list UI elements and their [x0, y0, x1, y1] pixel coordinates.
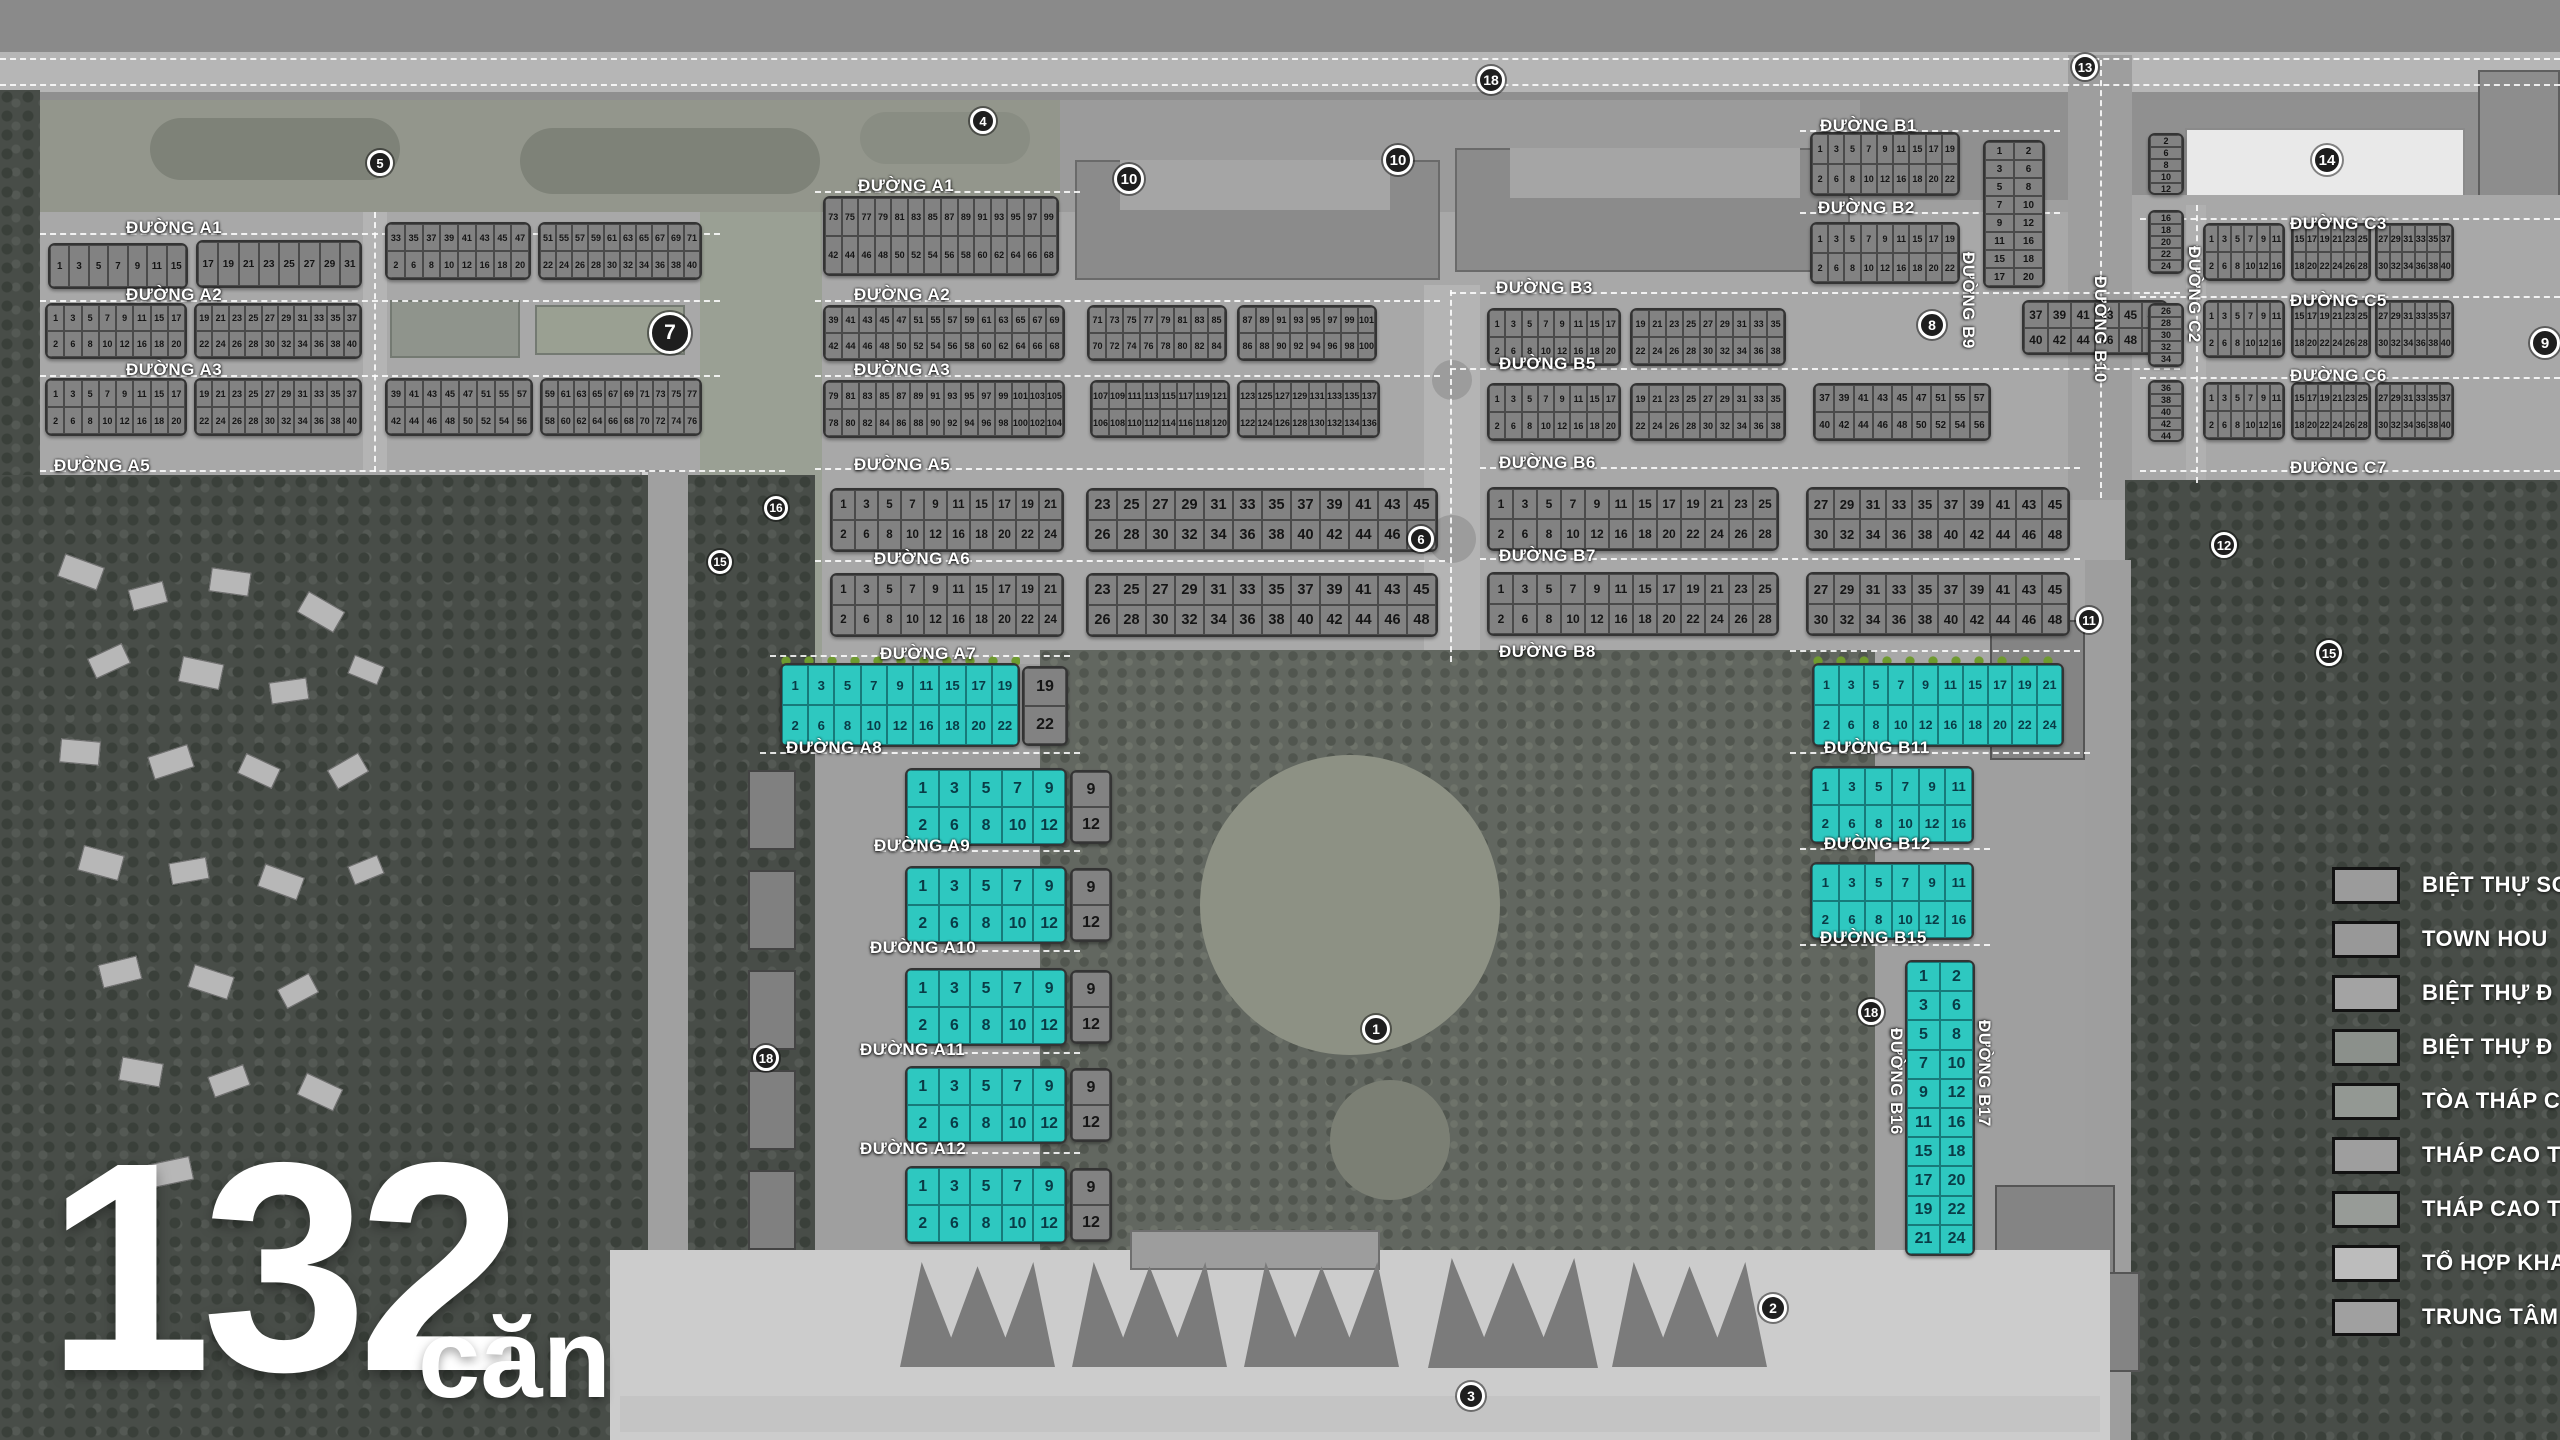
lot-number: 22 — [196, 407, 212, 434]
lot-number: 32 — [2390, 411, 2403, 438]
lot-number: 15 — [1633, 489, 1657, 519]
lot-number: 103 — [1029, 382, 1046, 409]
lot-number: 61 — [558, 380, 574, 407]
lot-number: 17 — [198, 242, 218, 286]
lot-number: 36 — [2415, 252, 2428, 279]
lot-number: 9 — [1033, 1068, 1065, 1105]
lot-number: 38 — [2150, 394, 2182, 406]
lot-number: 66 — [1029, 333, 1046, 359]
legend-swatch — [2332, 1083, 2400, 1120]
lot-number: 44 — [1349, 605, 1378, 635]
lot-number: 60 — [974, 236, 991, 274]
lot-number: 2 — [2014, 142, 2043, 160]
lot-number: 17 — [966, 665, 992, 705]
lot-number: 28 — [1753, 519, 1777, 549]
lot-number: 45 — [1892, 385, 1911, 412]
lot-number: 10 — [2244, 252, 2257, 279]
lot-number: 37 — [2024, 302, 2048, 328]
lot-number: 5 — [2231, 302, 2244, 329]
lot-number: 3 — [2218, 384, 2231, 411]
lot-number: 64 — [1007, 236, 1024, 274]
lot-number: 11 — [1570, 385, 1586, 412]
lot-number: 19 — [1016, 490, 1039, 520]
lot-number: 35 — [327, 380, 343, 407]
lot-number: 9 — [2257, 384, 2270, 411]
lot-number: 3 — [1513, 489, 1537, 519]
lot-number: 34 — [1204, 605, 1233, 635]
lot-block: 5155575961636567697122242628303234363840 — [538, 222, 702, 280]
lot-number: 11 — [2270, 302, 2283, 329]
lot-block: 2628303234 — [2148, 303, 2184, 367]
lot-number: 32 — [2390, 329, 2403, 356]
lot-block: 2681012 — [2148, 133, 2184, 195]
lot-number: 12 — [2257, 329, 2270, 356]
lot-number: 15 — [1963, 665, 1988, 705]
legend-swatch — [2332, 1137, 2400, 1174]
lot-block: 192123252729313335222426283032343638 — [1630, 308, 1786, 366]
road-centerline — [1790, 650, 2080, 652]
lot-number: 57 — [944, 307, 961, 333]
lot-number: 110 — [1126, 409, 1143, 436]
lot-number: 6 — [1513, 519, 1537, 549]
lot-number: 95 — [1007, 198, 1024, 236]
lot-number: 32 — [278, 331, 294, 357]
lot-number: 36 — [1233, 520, 1262, 550]
lot-number: 8 — [1537, 604, 1561, 634]
street-label: ĐƯỜNG A2 — [126, 285, 222, 305]
lot-number: 48 — [1892, 412, 1911, 439]
lot-number: 24 — [1705, 519, 1729, 549]
lot-number: 104 — [1046, 409, 1063, 436]
lot-number: 28 — [245, 331, 261, 357]
lot-block: 272931333537303234363840 — [2375, 382, 2454, 440]
lot-number: 24 — [2331, 329, 2344, 356]
lot-number: 28 — [2356, 411, 2369, 438]
lot-number: 1 — [2205, 384, 2218, 411]
lot-number: 68 — [1041, 236, 1058, 274]
lot-number: 40 — [2440, 329, 2453, 356]
hotel-building — [1612, 1262, 1767, 1367]
lot-block: 5961636567697173757758606264666870727476 — [540, 378, 702, 436]
lot-number: 2 — [1940, 962, 1973, 991]
lot-number: 23 — [259, 242, 279, 286]
lot-number: 19 — [1024, 668, 1066, 706]
lot-number: 34 — [1733, 412, 1750, 439]
legend-item: TOWN HOU — [2332, 912, 2560, 966]
lot-number: 15 — [970, 575, 993, 605]
lot-number: 48 — [441, 407, 459, 434]
lot-number: 31 — [294, 380, 310, 407]
lot-number: 44 — [405, 407, 423, 434]
lot-number: 5 — [1844, 134, 1860, 164]
lot-number: 2 — [907, 1205, 939, 1242]
lot-number: 1 — [2205, 225, 2218, 252]
lot-number: 8 — [1522, 412, 1538, 439]
lot-number: 9 — [1877, 134, 1893, 164]
lot-number: 18 — [970, 520, 993, 550]
lot-number: 19 — [1632, 310, 1649, 337]
street-label: ĐƯỜNG C7 — [2290, 458, 2387, 478]
lot-number: 6 — [855, 605, 878, 635]
lot-number: 113 — [1143, 382, 1160, 409]
lot-number: 6 — [939, 1105, 971, 1142]
lot-number: 42 — [1964, 604, 1990, 634]
lot-number: 34 — [1860, 604, 1886, 634]
lot-number: 25 — [1683, 385, 1700, 412]
lot-number: 32 — [1834, 604, 1860, 634]
lot-number: 6 — [1828, 253, 1844, 282]
legend-label: TỔ HỢP KHA — [2422, 1250, 2560, 1276]
lot-block: 39414345475155574244464850525456 — [385, 378, 533, 436]
hotel-building — [1428, 1258, 1598, 1368]
lot-number: 75 — [1123, 307, 1140, 333]
lot-number: 21 — [1649, 385, 1666, 412]
lot-number: 3 — [939, 970, 971, 1007]
hotel-building — [1244, 1262, 1399, 1367]
lot-number: 12 — [924, 520, 947, 550]
lot-number: 10 — [1561, 519, 1585, 549]
lot-number: 18 — [2293, 252, 2306, 279]
street-label: ĐƯỜNG A3 — [854, 360, 950, 380]
lot-number: 43 — [1873, 385, 1892, 412]
lot-number: 46 — [859, 333, 876, 359]
lot-number: 43 — [859, 307, 876, 333]
lot-number: 15 — [151, 305, 168, 331]
lot-number: 31 — [1860, 574, 1886, 604]
lot-number: 9 — [116, 380, 133, 407]
lot-number: 119 — [1194, 382, 1211, 409]
lot-number: 132 — [1326, 409, 1343, 436]
lot-number: 7 — [901, 575, 924, 605]
road-centerline — [0, 58, 2560, 60]
numbered-marker: 14 — [2312, 145, 2342, 175]
lot-number: 41 — [1349, 575, 1378, 605]
lot-number: 38 — [1767, 412, 1784, 439]
lot-number: 1 — [907, 1168, 939, 1205]
lot-number: 5 — [2231, 225, 2244, 252]
lot-number: 29 — [1175, 575, 1204, 605]
lot-number: 7 — [1002, 1168, 1034, 1205]
lot-number: 82 — [859, 409, 876, 436]
lot-number: 46 — [423, 407, 441, 434]
lot-number: 40 — [344, 331, 360, 357]
lot-number: 16 — [1609, 519, 1633, 549]
lot-number: 17 — [1603, 310, 1619, 337]
lot-number: 54 — [927, 333, 944, 359]
lot-number: 9 — [2257, 225, 2270, 252]
lot-number: 28 — [2356, 252, 2369, 279]
lot-number: 47 — [511, 224, 529, 251]
lot-number: 26 — [1088, 520, 1117, 550]
lot-number: 12 — [2150, 183, 2182, 195]
lot-number: 3 — [2218, 302, 2231, 329]
lot-number: 30 — [2377, 329, 2390, 356]
lot-number: 33 — [1886, 489, 1912, 519]
lot-number: 12 — [1033, 1105, 1065, 1142]
highlighted-lot-block: 135792681012 — [905, 968, 1067, 1046]
lot-number: 8 — [878, 605, 901, 635]
lot-block: 2729313335373941434530323436384042444648 — [1806, 487, 2070, 551]
lot-number: 20 — [1657, 604, 1681, 634]
lot-number: 24 — [2150, 260, 2182, 272]
lot-number: 33 — [1750, 385, 1767, 412]
lot-number: 48 — [2042, 604, 2068, 634]
lot-number: 11 — [1938, 665, 1963, 705]
lot-number: 37 — [2440, 225, 2453, 252]
lot-number: 11 — [1985, 232, 2014, 250]
lot-number: 94 — [1307, 333, 1324, 359]
lot-number: 31 — [340, 242, 360, 286]
numbered-marker: 10 — [1114, 164, 1144, 194]
lot-number: 72 — [653, 407, 669, 434]
lot-number: 32 — [2390, 252, 2403, 279]
lot-number: 8 — [1844, 164, 1860, 194]
lot-number: 1 — [1812, 768, 1839, 805]
lot-number: 69 — [668, 224, 684, 251]
lot-number: 36 — [2415, 411, 2428, 438]
lot-number: 28 — [588, 251, 604, 278]
lot-number: 27 — [262, 380, 278, 407]
numbered-marker: 18 — [753, 1045, 779, 1071]
lot-number: 10 — [1861, 164, 1877, 194]
lot-number: 39 — [1320, 575, 1349, 605]
lot-number: 22 — [1940, 1196, 1973, 1225]
numbered-marker: 7 — [649, 312, 691, 354]
lot-number: 17 — [1985, 268, 2014, 286]
lot-number: 41 — [1990, 489, 2016, 519]
lot-number: 105 — [1046, 382, 1063, 409]
highlighted-lot-block: 135792681012 — [905, 1066, 1067, 1144]
highlighted-lot-block: 12365871091211161518172019222124 — [1905, 960, 1975, 1256]
numbered-marker: 12 — [2211, 532, 2237, 558]
lot-number: 7 — [1888, 665, 1913, 705]
legend-label: TRUNG TÂM — [2422, 1304, 2558, 1330]
lot-number: 17 — [1926, 224, 1942, 253]
lot-number: 1 — [1489, 574, 1513, 604]
lot-number: 45 — [1407, 490, 1436, 520]
lot-number: 19 — [196, 305, 212, 331]
legend-swatch — [2332, 867, 2400, 904]
lot-number: 19 — [1016, 575, 1039, 605]
lot-number: 35 — [2427, 225, 2440, 252]
lot-number: 16 — [1940, 1108, 1973, 1137]
lot-number: 100 — [1358, 333, 1375, 359]
lot-number: 37 — [1938, 489, 1964, 519]
lot-block: 373941434547515557404244464850525456 — [1813, 383, 1991, 441]
lot-number: 27 — [262, 305, 278, 331]
lot-number: 36 — [1886, 604, 1912, 634]
lot-number: 9 — [1919, 864, 1946, 901]
lot-number: 1 — [1814, 665, 1839, 705]
lot-number: 2 — [387, 251, 405, 278]
lot-number: 76 — [1140, 333, 1157, 359]
lot-number: 27 — [1146, 490, 1175, 520]
lot-number: 24 — [1940, 1225, 1973, 1254]
lot-number: 2 — [907, 1007, 939, 1044]
lot-number: 34 — [2402, 411, 2415, 438]
lot-number: 31 — [1204, 490, 1233, 520]
lot-number: 117 — [1177, 382, 1194, 409]
lot-number: 20 — [1603, 412, 1619, 439]
lot-number: 3 — [939, 1168, 971, 1205]
lot-number: 5 — [1864, 665, 1889, 705]
lot-number: 56 — [1970, 412, 1989, 439]
lot-block: 1357911151719212325268101216182022242628 — [1487, 487, 1779, 551]
lot-number: 20 — [993, 605, 1016, 635]
street-label: ĐƯỜNG A2 — [854, 285, 950, 305]
lot-number: 17 — [993, 575, 1016, 605]
lot-number: 36 — [652, 251, 668, 278]
lot-number: 1 — [907, 970, 939, 1007]
lot-number: 96 — [978, 409, 995, 436]
lot-number: 10 — [1002, 1105, 1034, 1142]
lot-number: 18 — [1909, 164, 1925, 194]
lot-number: 29 — [320, 242, 340, 286]
map-zone — [748, 1070, 796, 1150]
legend-swatch — [2332, 975, 2400, 1012]
numbered-marker: 15 — [2316, 640, 2342, 666]
lot-number: 7 — [1892, 864, 1919, 901]
numbered-marker: 11 — [2076, 607, 2102, 633]
lot-block: 912 — [1070, 970, 1112, 1044]
lot-number: 29 — [1716, 310, 1733, 337]
lot-number: 120 — [1211, 409, 1228, 436]
map-zone — [1130, 1230, 1380, 1270]
lot-number: 35 — [2427, 384, 2440, 411]
lot-number: 3 — [1985, 160, 2014, 178]
lot-number: 45 — [2119, 302, 2143, 328]
lot-number: 23 — [229, 380, 245, 407]
numbered-marker: 18 — [1477, 66, 1505, 94]
road-centerline — [40, 470, 785, 472]
lot-number: 98 — [995, 409, 1012, 436]
lot-number: 89 — [958, 198, 975, 236]
lot-number: 6 — [2150, 147, 2182, 159]
lot-number: 42 — [1834, 412, 1853, 439]
numbered-marker: 1 — [1362, 1015, 1390, 1043]
lot-number: 3 — [1828, 134, 1844, 164]
map-zone — [2478, 70, 2560, 215]
lot-number: 48 — [876, 333, 893, 359]
lot-number: 65 — [636, 224, 652, 251]
lot-number: 3 — [64, 305, 81, 331]
lot-number: 58 — [542, 407, 558, 434]
lot-number: 34 — [2150, 353, 2182, 365]
lot-number: 2 — [832, 605, 855, 635]
lot-number: 10 — [2014, 196, 2043, 214]
road-centerline — [1450, 290, 1452, 662]
lot-number: 2 — [907, 905, 939, 942]
lot-number: 35 — [1767, 310, 1784, 337]
lot-number: 18 — [970, 605, 993, 635]
lot-number: 36 — [1750, 412, 1767, 439]
legend-item: BIỆT THỰ Đ — [2332, 1020, 2560, 1074]
lot-number: 91 — [927, 382, 944, 409]
lot-number: 20 — [2014, 268, 2043, 286]
lot-number: 121 — [1211, 382, 1228, 409]
lot-number: 29 — [2390, 225, 2403, 252]
lot-number: 7 — [1985, 196, 2014, 214]
lot-number: 40 — [2440, 252, 2453, 279]
lot-number: 15 — [1909, 134, 1925, 164]
lot-number: 30 — [1146, 520, 1175, 550]
lot-block: 1922 — [1022, 666, 1068, 746]
lot-number: 26 — [229, 331, 245, 357]
lot-number: 55 — [495, 380, 513, 407]
lot-number: 20 — [168, 407, 185, 434]
legend-label: TOWN HOU — [2422, 926, 2548, 952]
lot-block: 13579111517192126810121618202224 — [830, 488, 1064, 552]
lot-number: 20 — [2306, 411, 2319, 438]
lot-number: 75 — [842, 198, 859, 236]
lot-number: 64 — [589, 407, 605, 434]
lot-number: 32 — [1716, 337, 1733, 364]
lot-number: 16 — [133, 331, 150, 357]
lot-number: 5 — [878, 575, 901, 605]
lot-number: 95 — [1307, 307, 1324, 333]
lot-number: 63 — [620, 224, 636, 251]
lot-number: 10 — [1002, 1205, 1034, 1242]
lot-number: 33 — [387, 224, 405, 251]
legend-swatch — [2332, 1245, 2400, 1282]
lot-number: 46 — [2016, 519, 2042, 549]
lot-number: 22 — [2318, 329, 2331, 356]
lot-number: 1 — [50, 245, 69, 287]
lot-number: 8 — [878, 520, 901, 550]
lot-number: 24 — [212, 331, 228, 357]
numbered-marker: 16 — [764, 496, 788, 520]
lot-number: 57 — [513, 380, 531, 407]
lot-number: 29 — [278, 305, 294, 331]
lot-number: 7 — [1002, 770, 1034, 807]
lot-number: 19 — [196, 380, 212, 407]
lot-number: 12 — [2257, 252, 2270, 279]
lot-block: 71737577798183857072747678808284 — [1087, 305, 1227, 361]
lot-number: 17 — [1907, 1166, 1940, 1195]
lot-number: 45 — [1407, 575, 1436, 605]
lot-number: 3 — [1505, 385, 1521, 412]
lot-number: 20 — [966, 705, 992, 745]
lot-number: 21 — [1039, 575, 1062, 605]
lot-number: 136 — [1361, 409, 1378, 436]
lot-number: 54 — [1950, 412, 1969, 439]
lot-number: 16 — [1893, 164, 1909, 194]
lot-number: 9 — [1585, 574, 1609, 604]
lot-number: 77 — [684, 380, 700, 407]
lot-number: 97 — [1324, 307, 1341, 333]
lot-number: 32 — [1175, 605, 1204, 635]
lot-number: 48 — [2042, 519, 2068, 549]
lot-number: 10 — [1940, 1050, 1973, 1079]
lot-number: 23 — [1088, 575, 1117, 605]
numbered-marker: 9 — [2530, 328, 2560, 358]
lot-number: 22 — [1016, 605, 1039, 635]
lot-block: 1231251271291311331351371221241261281301… — [1237, 380, 1380, 438]
lot-number: 3 — [1839, 768, 1866, 805]
map-zone — [748, 770, 796, 850]
map-zone — [520, 128, 820, 194]
numbered-marker: 3 — [1457, 1382, 1485, 1410]
lot-number: 6 — [2218, 411, 2231, 438]
lot-number: 2 — [1812, 164, 1828, 194]
lot-number: 97 — [1024, 198, 1041, 236]
street-label: ĐƯỜNG A9 — [874, 836, 970, 856]
lot-block: 8789919395979910186889092949698100 — [1237, 305, 1377, 361]
lot-number: 1 — [2205, 302, 2218, 329]
legend-label: BIỆT THỰ SO — [2422, 872, 2560, 898]
lot-number: 12 — [1072, 1105, 1110, 1140]
lot-number: 6 — [1828, 164, 1844, 194]
